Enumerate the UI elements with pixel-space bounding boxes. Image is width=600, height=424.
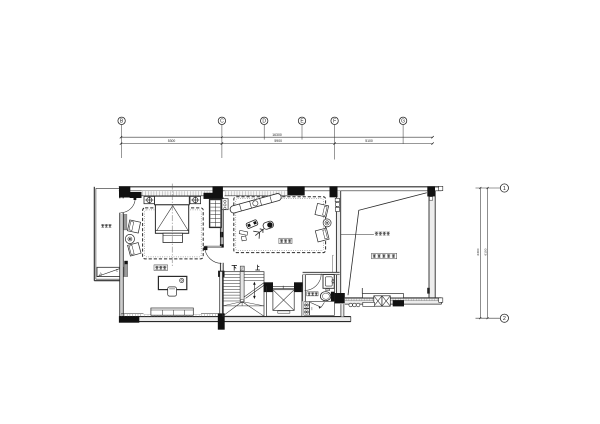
svg-text:F: F <box>333 119 336 125</box>
svg-text:G: G <box>401 119 405 125</box>
svg-text:5300: 5300 <box>168 139 176 143</box>
svg-text:6300: 6300 <box>476 248 480 255</box>
svg-text:1: 1 <box>503 186 506 192</box>
svg-text:C: C <box>220 119 224 125</box>
svg-text:D: D <box>262 119 266 125</box>
svg-text:2: 2 <box>503 316 506 322</box>
svg-text:5100: 5100 <box>365 139 373 143</box>
svg-text:A: A <box>99 272 102 277</box>
svg-text:16300: 16300 <box>272 133 282 137</box>
svg-text:5900: 5900 <box>274 139 282 143</box>
svg-text:6100: 6100 <box>484 248 488 255</box>
